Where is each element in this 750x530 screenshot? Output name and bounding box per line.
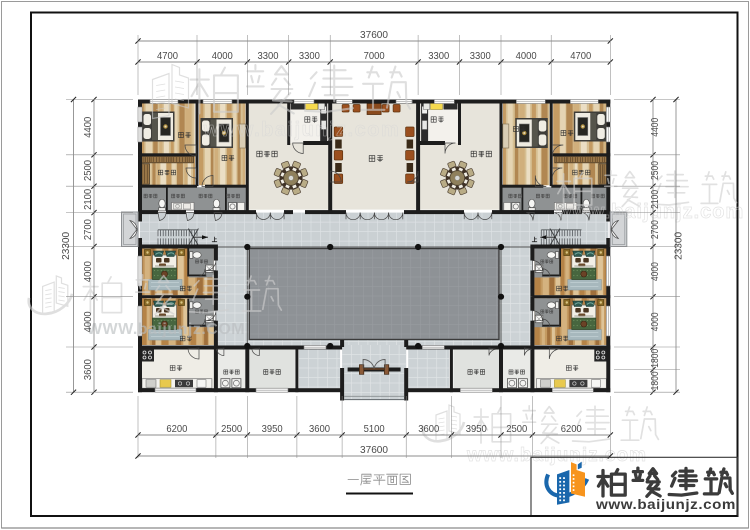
svg-text:4400: 4400 <box>82 117 94 138</box>
svg-text:2700: 2700 <box>82 219 94 240</box>
svg-text:4000: 4000 <box>516 50 537 62</box>
svg-text:www.baijunjz.com: www.baijunjz.com <box>466 445 647 466</box>
svg-text:4400: 4400 <box>649 118 661 137</box>
svg-text:2100: 2100 <box>649 190 661 209</box>
svg-text:37600: 37600 <box>360 29 388 41</box>
svg-text:4000: 4000 <box>82 261 94 282</box>
svg-text:3300: 3300 <box>428 50 449 62</box>
svg-text:7000: 7000 <box>364 50 385 62</box>
svg-text:6200: 6200 <box>166 423 187 435</box>
svg-text:2700: 2700 <box>649 220 661 239</box>
svg-text:4000: 4000 <box>649 262 661 281</box>
svg-text:2500: 2500 <box>221 423 242 435</box>
svg-text:3300: 3300 <box>470 50 491 62</box>
svg-text:3600: 3600 <box>309 423 330 435</box>
svg-text:3950: 3950 <box>466 423 487 435</box>
svg-text:23300: 23300 <box>60 232 72 260</box>
svg-text:3600: 3600 <box>82 359 94 380</box>
svg-text:2500: 2500 <box>649 161 661 180</box>
svg-text:6200: 6200 <box>561 423 582 435</box>
svg-text:4000: 4000 <box>212 50 233 62</box>
svg-text:1800: 1800 <box>649 371 661 390</box>
svg-text:23300: 23300 <box>673 232 685 260</box>
svg-text:www.baijunjz.com: www.baijunjz.com <box>595 497 736 512</box>
svg-text:4700: 4700 <box>157 50 178 62</box>
svg-text:1800: 1800 <box>649 349 661 368</box>
svg-text:3300: 3300 <box>299 50 320 62</box>
svg-text:3950: 3950 <box>262 423 283 435</box>
svg-text:2500: 2500 <box>506 423 527 435</box>
svg-text:www.baijunjz.com: www.baijunjz.com <box>203 119 401 141</box>
svg-text:2500: 2500 <box>82 160 94 181</box>
svg-text:37600: 37600 <box>360 444 388 456</box>
svg-text:5100: 5100 <box>364 423 385 435</box>
svg-text:3600: 3600 <box>418 423 439 435</box>
svg-text:4000: 4000 <box>649 312 661 331</box>
svg-text:WWW.baijunjz.COM: WWW.baijunjz.COM <box>87 321 245 338</box>
svg-text:3300: 3300 <box>258 50 279 62</box>
svg-text:4700: 4700 <box>570 50 591 62</box>
svg-text:4000: 4000 <box>82 311 94 332</box>
svg-text:2100: 2100 <box>82 189 94 210</box>
